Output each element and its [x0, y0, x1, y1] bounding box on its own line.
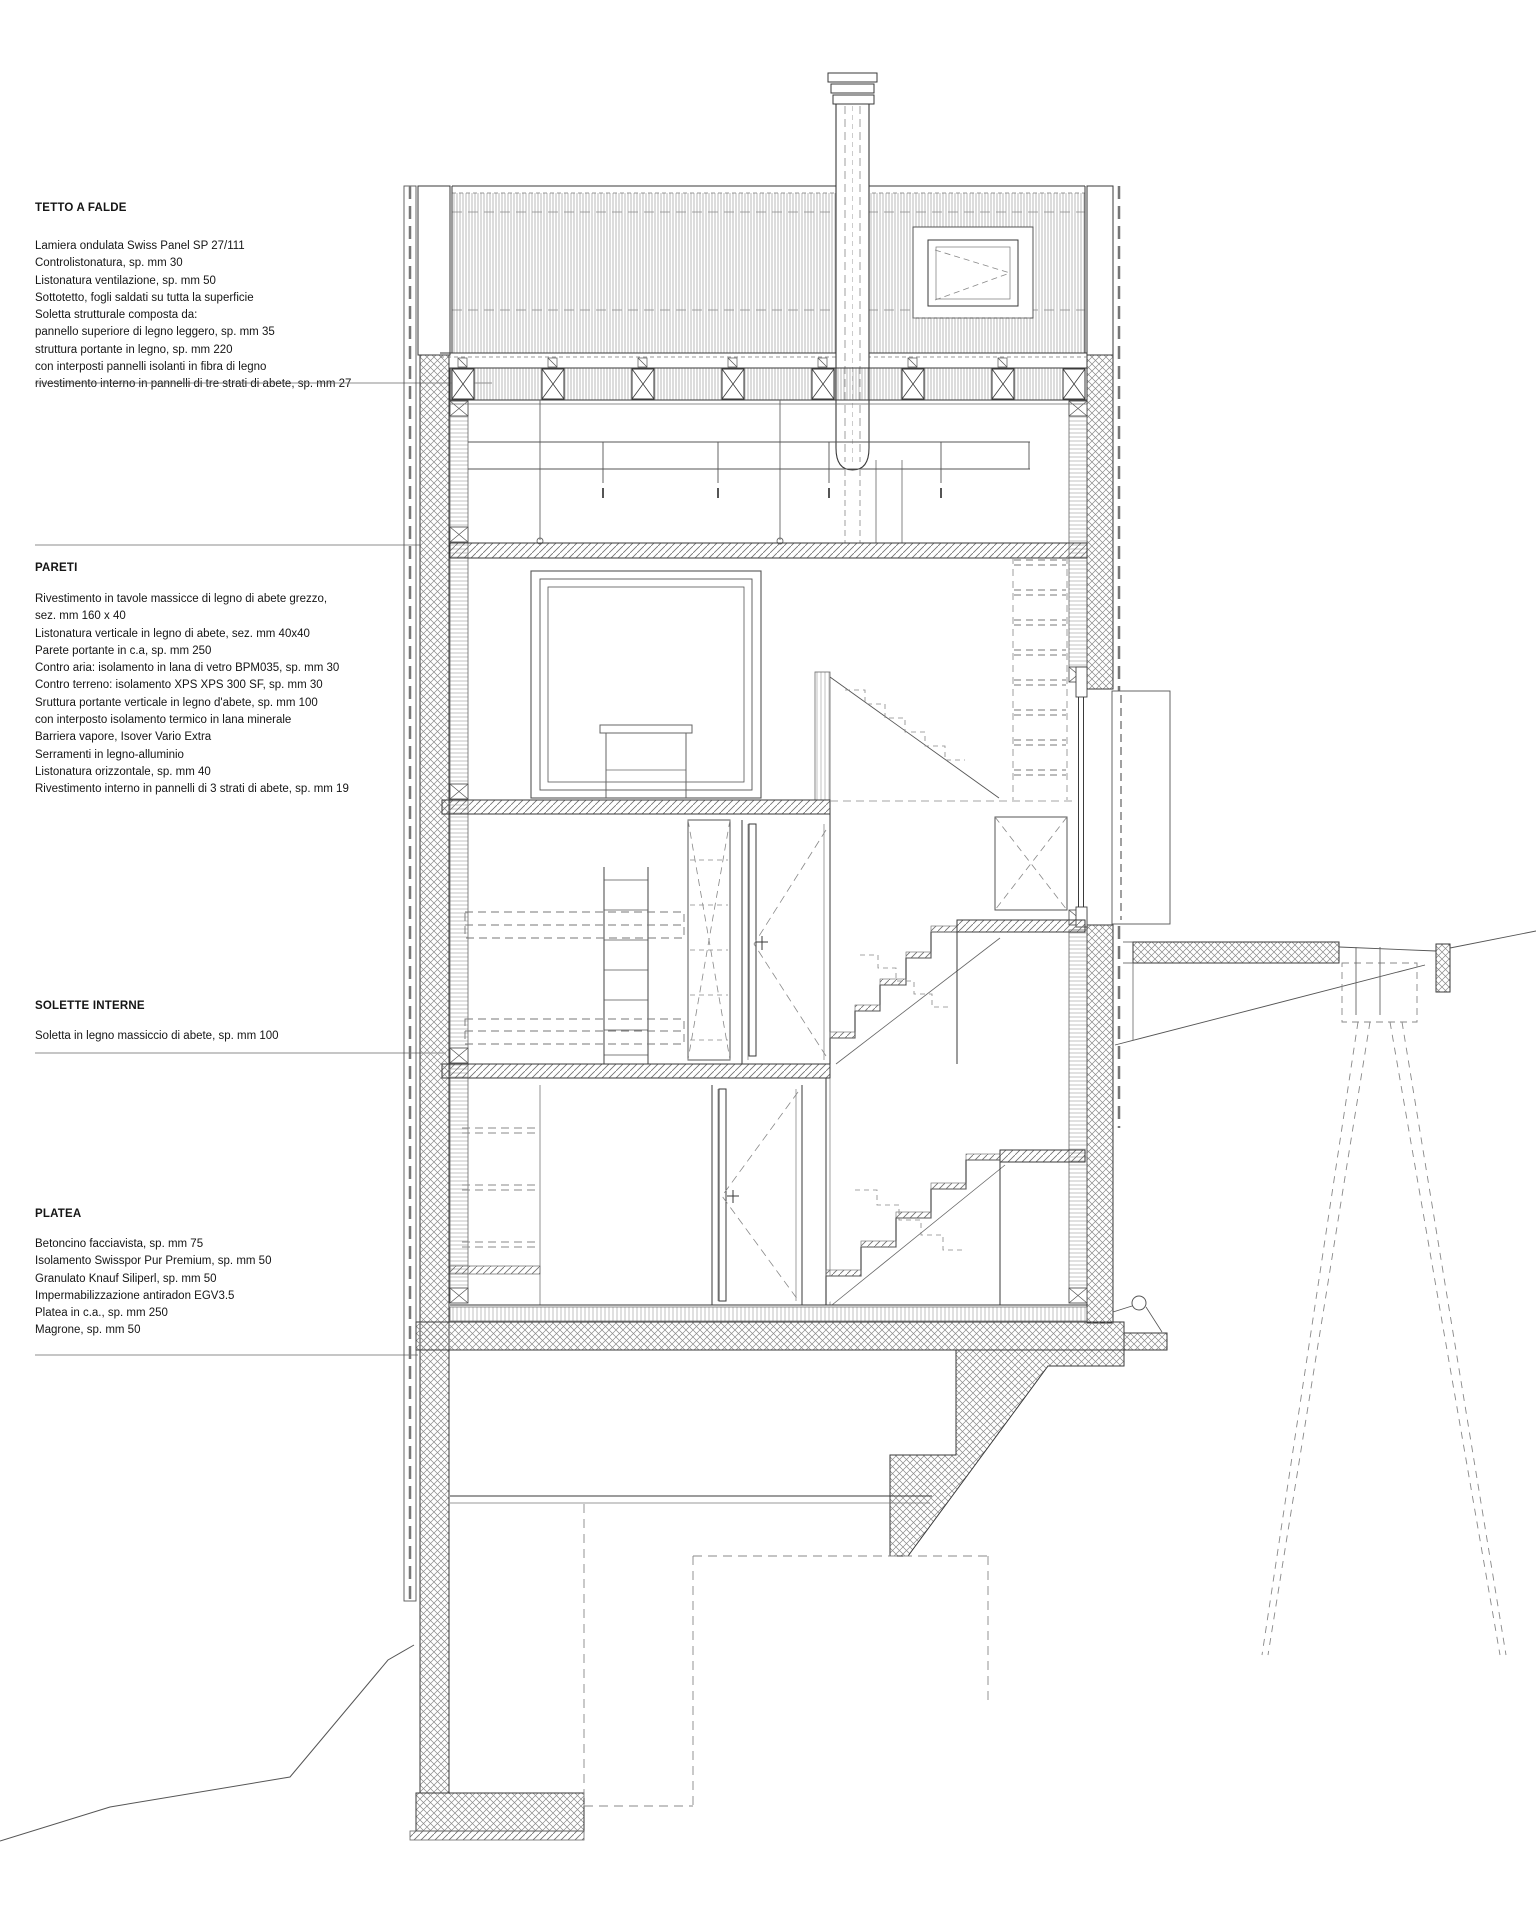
- left-inner-cladding: [450, 400, 468, 1303]
- architectural-section-sheet: TETTO A FALDE Lamiera ondulata Swiss Pan…: [0, 0, 1536, 1920]
- left-footing: [410, 1793, 584, 1840]
- excavation-dashed: [584, 1504, 988, 1806]
- hall-wardrobe-rail: [468, 442, 1030, 498]
- roof-structure-band: [450, 358, 1087, 404]
- landing-window: [995, 817, 1067, 910]
- right-wall-concrete-lower: [1087, 925, 1113, 1323]
- right-foundation: [890, 1350, 1124, 1556]
- stool: [600, 725, 692, 798]
- wardrobe-cabinet: [688, 820, 730, 1060]
- hall-hanger-rods: [537, 400, 783, 544]
- middle-floor-slab: [442, 800, 830, 814]
- stairwell-mid: [815, 672, 999, 800]
- external-shutter-panel: [1112, 691, 1170, 924]
- right-wall-concrete-upper: [1087, 355, 1113, 689]
- hall-floor-slab: [450, 543, 1087, 558]
- right-wall-top: [1087, 186, 1113, 355]
- bedroom-door: [742, 814, 830, 1078]
- left-wall-top: [418, 186, 450, 355]
- section-drawing: [0, 0, 1536, 1920]
- stair-upper-flight-dashed: [1013, 557, 1067, 800]
- bunk-beds: [465, 912, 684, 1044]
- ground-floor-layers: [450, 1305, 1087, 1321]
- platea-right-ledge: [1124, 1333, 1167, 1350]
- surveyor-tripod: [1262, 947, 1506, 1655]
- stair-ground-flight: [826, 1150, 1085, 1305]
- stair-bedroom-flight: [830, 920, 1085, 1064]
- right-wall-window: [1076, 667, 1087, 927]
- ladder: [604, 867, 648, 1064]
- basement-outline: [450, 1496, 932, 1503]
- large-window: [531, 571, 761, 798]
- platea-slab: [416, 1322, 1124, 1350]
- retaining-wall: [1115, 931, 1536, 1045]
- ground-door: [712, 1085, 802, 1305]
- bedroom-floor-slab: [442, 1064, 830, 1078]
- terrain-line-left: [0, 1645, 414, 1841]
- left-facade-strip: [404, 186, 416, 1601]
- dormer-skylight: [913, 227, 1033, 318]
